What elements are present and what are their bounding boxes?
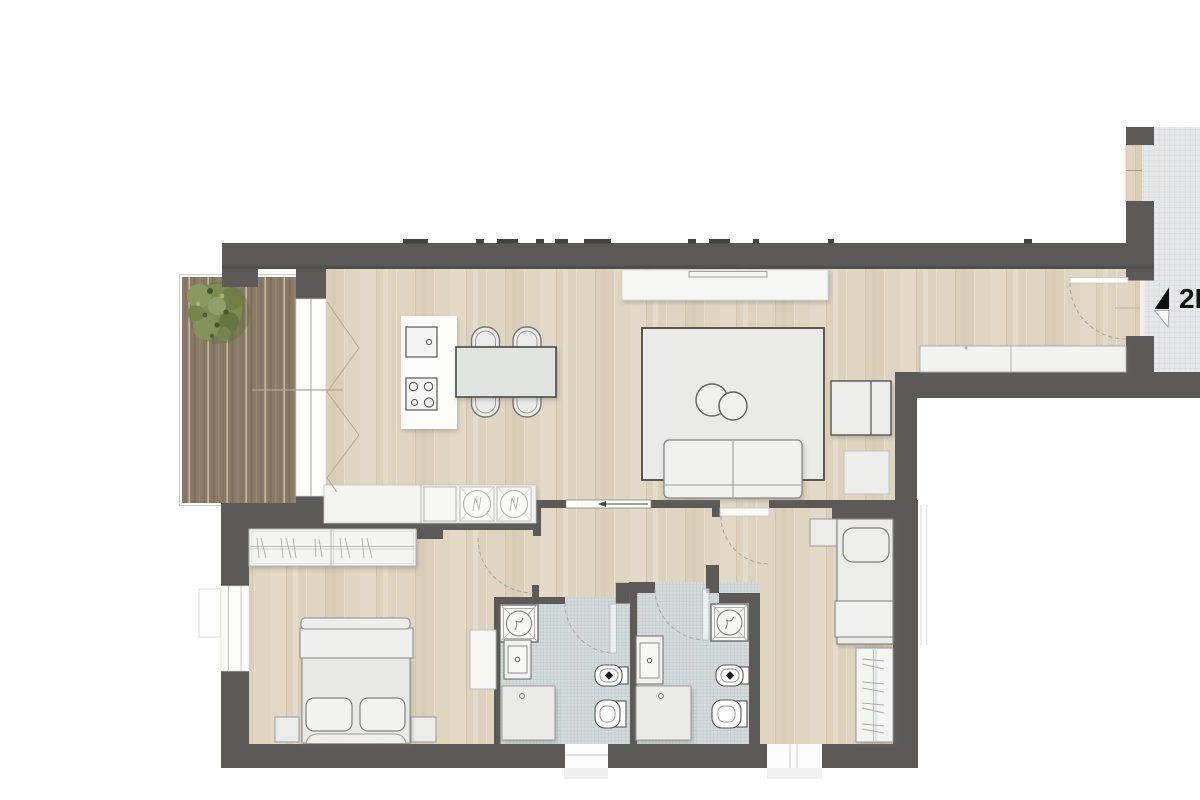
svg-text:2B: 2B (1179, 283, 1200, 314)
